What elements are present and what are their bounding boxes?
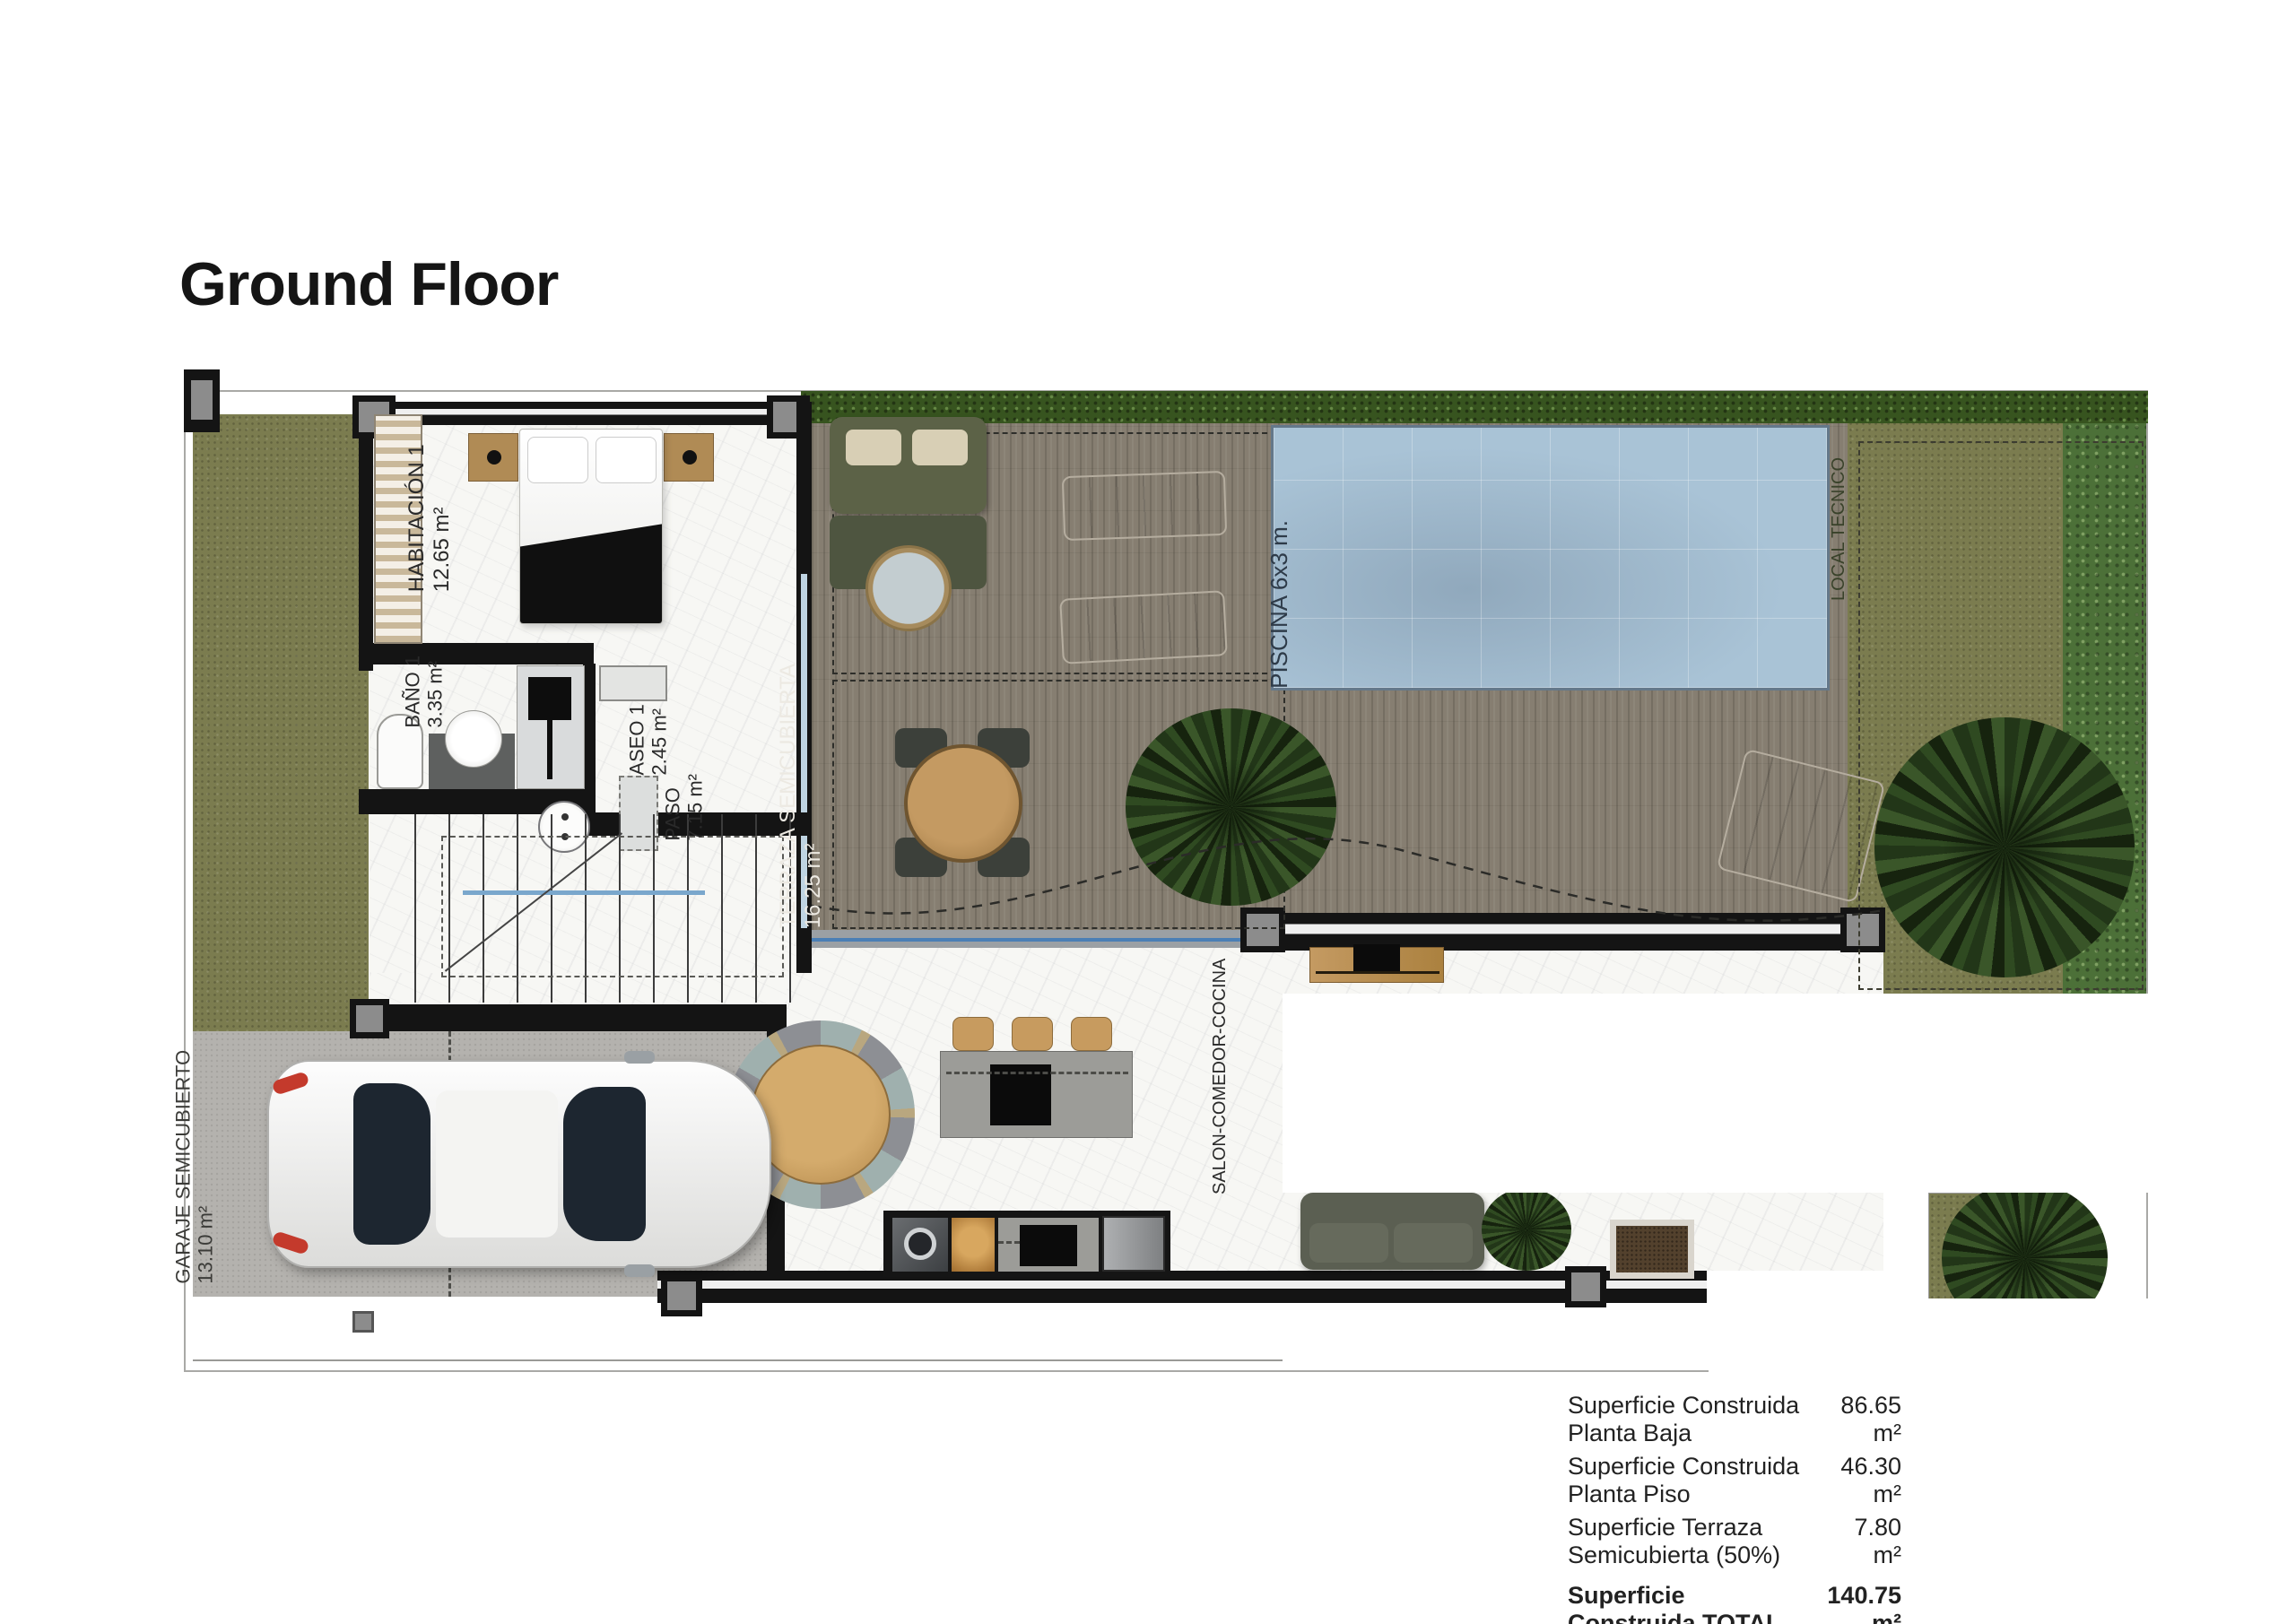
bedroom-top-wall — [359, 402, 809, 425]
kitchen-island — [940, 1051, 1133, 1138]
summary-label: Superficie Construida Planta Baja — [1568, 1392, 1831, 1447]
pillow — [527, 437, 588, 483]
room-area: 13.10 m² — [195, 1206, 217, 1284]
bath-vanity — [429, 734, 515, 789]
summary-value: 7.80 m² — [1846, 1514, 1901, 1569]
floor-plan-page: Ground Floor — [0, 0, 2296, 1624]
shower-pipe — [547, 720, 552, 779]
kitchen-counter-run — [883, 1211, 1170, 1277]
summary-total-row: Superficie Construida TOTAL 140.75 m² — [1568, 1582, 1901, 1624]
counter-dashes — [998, 1241, 1020, 1244]
pillar — [661, 1275, 702, 1316]
summary-value: 140.75 m² — [1819, 1582, 1901, 1624]
room-name: LOCAL TECNICO — [1829, 457, 1848, 601]
fridge — [1102, 1216, 1165, 1272]
white-mask-region — [1283, 994, 2296, 1193]
room-name: PISCINA 6x3 m. — [1265, 520, 1292, 689]
summary-row: Superficie Terraza Semicubierta (50%) 7.… — [1568, 1514, 1901, 1569]
summary-value: 46.30 m² — [1831, 1453, 1901, 1508]
room-name: ASEO 1 — [625, 704, 648, 775]
page-title: Ground Floor — [179, 249, 558, 319]
car — [267, 1060, 771, 1268]
shower — [517, 665, 585, 789]
pillow — [596, 437, 657, 483]
room-area: 3.35 m² — [424, 661, 447, 728]
stairs-garage-wall — [359, 1004, 787, 1031]
corner-pillar-topleft — [191, 380, 213, 420]
sofa-cushion — [1394, 1223, 1473, 1263]
room-label-aseo: ASEO 1 2.45 m² — [625, 704, 671, 775]
tv — [1353, 944, 1400, 973]
tv-sideboard — [1309, 947, 1444, 983]
summary-row: Superficie Construida Planta Piso 46.30 … — [1568, 1453, 1901, 1508]
car-rear-window — [353, 1083, 430, 1245]
washer-door — [904, 1228, 936, 1260]
bath-sink — [445, 710, 502, 768]
island-dashes — [946, 1072, 1128, 1074]
room-label-terraza: TERRAZA SEMICUBIERTA 16.25 m² — [776, 664, 825, 928]
bath-aseo-partition — [583, 664, 596, 812]
car-windshield — [563, 1087, 646, 1241]
aseo-console — [599, 665, 667, 701]
room-label-bano: BAÑO 1 3.35 m² — [401, 656, 447, 728]
left-garden — [193, 414, 369, 1031]
pillar — [350, 999, 389, 1038]
white-mask-bottom — [1709, 1298, 2296, 1402]
doormat — [1610, 1220, 1694, 1279]
walkway-post — [352, 1311, 374, 1333]
stool — [1071, 1017, 1112, 1051]
stairs-handrail — [463, 890, 705, 895]
bed-blanket — [519, 523, 663, 624]
oven — [1020, 1225, 1077, 1266]
summary-label: Superficie Construida Planta Piso — [1568, 1453, 1831, 1508]
sofa-cushion — [1309, 1223, 1388, 1263]
top-hedge — [801, 391, 2148, 423]
summary-row: Superficie Construida Planta Baja 86.65 … — [1568, 1392, 1901, 1447]
dining-table — [751, 1045, 891, 1185]
shower-head — [528, 677, 571, 720]
summary-label: Superficie Construida TOTAL — [1568, 1582, 1819, 1624]
room-area: 12.65 m² — [429, 507, 453, 592]
washing-machine — [892, 1218, 948, 1272]
stool — [952, 1017, 994, 1051]
room-label-local-tecnico: LOCAL TECNICO — [1829, 457, 1849, 601]
walkway-edge — [193, 1359, 1283, 1361]
wood-cabinet — [952, 1218, 995, 1272]
area-summary-table: Superficie Construida Planta Baja 86.65 … — [1568, 1392, 1901, 1624]
room-label-piscina: PISCINA 6x3 m. — [1266, 520, 1293, 689]
room-area: 7.15 m² — [684, 774, 707, 841]
stool — [1012, 1017, 1053, 1051]
living-sofa — [1300, 1193, 1484, 1270]
room-area: 16.25 m² — [800, 843, 824, 928]
lamp — [487, 450, 501, 465]
bedroom-left-wall — [359, 402, 373, 671]
living-bottom-wall — [657, 1271, 1707, 1303]
room-name: SALON-COMEDOR-COCINA — [1210, 959, 1230, 1194]
room-name: PASO — [661, 787, 683, 841]
room-name: GARAJE SEMICUBIERTO — [171, 1050, 194, 1284]
room-label-salon: SALON-COMEDOR-COCINA — [1210, 959, 1231, 1194]
car-mirror — [624, 1051, 655, 1064]
room-name: HABITACIÓN 1 — [404, 444, 429, 592]
palm-tree — [1874, 717, 2135, 977]
sideboard-groove — [1316, 971, 1439, 974]
room-label-habitacion: HABITACIÓN 1 12.65 m² — [404, 444, 454, 592]
nightstand — [468, 433, 518, 482]
car-mirror — [624, 1264, 655, 1277]
summary-label: Superficie Terraza Semicubierta (50%) — [1568, 1514, 1846, 1569]
room-name: TERRAZA SEMICUBIERTA — [776, 664, 800, 928]
stairs-guide — [441, 836, 784, 977]
bed — [519, 429, 663, 624]
lamp — [683, 450, 697, 465]
room-name: BAÑO 1 — [401, 656, 423, 728]
counter-segment — [998, 1218, 1099, 1272]
indoor-plant — [1482, 1188, 1571, 1271]
room-label-paso: PASO 7.15 m² — [661, 774, 707, 841]
bedroom-bath-wall — [359, 643, 594, 664]
car-roof — [436, 1090, 558, 1238]
summary-value: 86.65 m² — [1831, 1392, 1901, 1447]
pillar — [1565, 1266, 1606, 1307]
room-label-garaje: GARAJE SEMICUBIERTO 13.10 m² — [171, 1050, 217, 1284]
deck-path-curve — [812, 421, 1884, 933]
room-area: 2.45 m² — [648, 708, 671, 776]
nightstand — [664, 433, 714, 482]
living-sliding-door — [812, 930, 1253, 948]
